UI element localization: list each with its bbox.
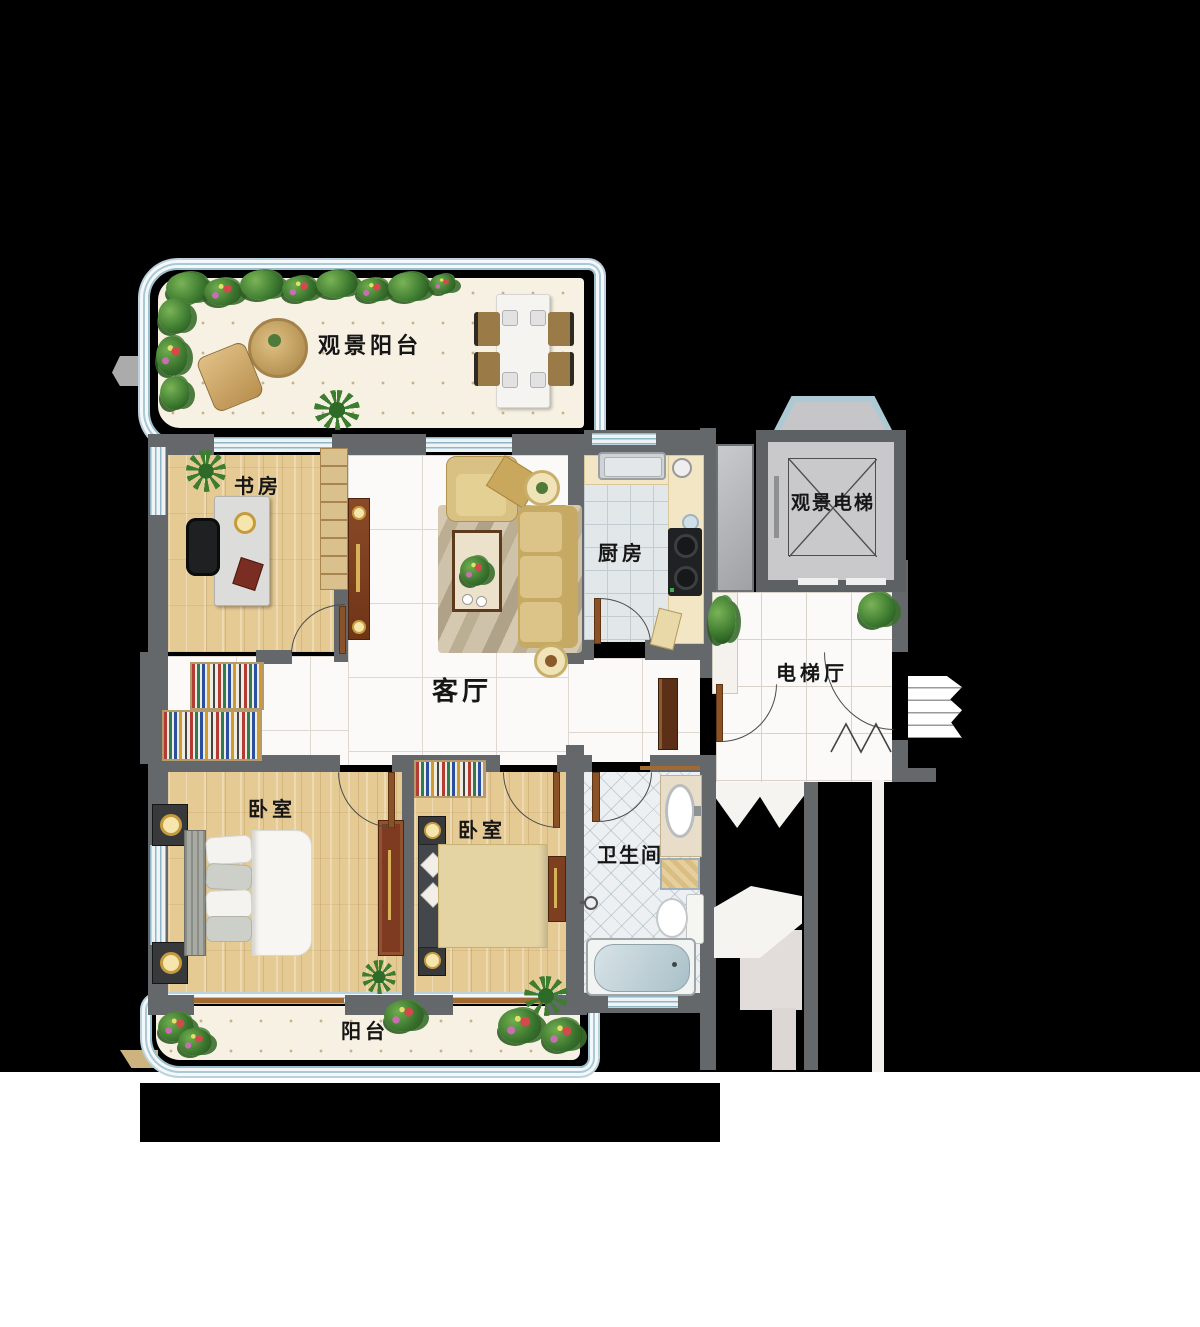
lamp-icon	[424, 952, 441, 969]
room-label-master-bedroom: 卧室	[192, 798, 352, 822]
bed-blanket	[252, 830, 312, 956]
teacup-icon	[476, 596, 487, 607]
flower-plant-icon	[178, 1028, 212, 1056]
room-label-bathroom: 卫生间	[550, 844, 710, 868]
sideboard-knob-icon	[352, 506, 366, 520]
study-bookcase	[320, 448, 348, 590]
study-window	[214, 437, 332, 452]
counter-burner-icon	[672, 458, 692, 478]
elevator-door-mark	[798, 578, 838, 585]
sill-plant-icon	[708, 596, 736, 644]
bathtub-basin	[594, 944, 690, 992]
dining-chair	[548, 352, 574, 386]
hall-bookshelf	[190, 662, 264, 710]
bed-pillow	[205, 834, 253, 865]
sideboard-handle	[356, 544, 360, 592]
entry-corridor-floor	[568, 658, 700, 762]
room-label-elevator-hall: 电梯厅	[732, 662, 892, 686]
lamp-icon	[160, 952, 182, 974]
kitchen-window	[592, 433, 656, 445]
wall	[804, 782, 818, 1070]
flower-plant-icon	[282, 276, 318, 302]
dining-chair	[474, 312, 500, 346]
place-setting	[502, 372, 518, 388]
teacup-icon	[462, 594, 473, 605]
wall	[140, 652, 162, 764]
shoe-cabinet	[658, 678, 678, 750]
elevator-door-mark	[846, 578, 886, 585]
plant-icon	[388, 272, 430, 302]
side-table-bottom-dot	[545, 655, 557, 667]
room-label-living-room: 客厅	[382, 676, 542, 707]
place-setting	[530, 310, 546, 326]
wall	[392, 755, 414, 772]
plant-icon	[316, 270, 358, 298]
flower-plant-icon	[430, 274, 456, 294]
flower-plant-icon	[156, 336, 188, 376]
side-table-top-dot	[536, 482, 548, 494]
shaft-white-band	[872, 780, 884, 1072]
room-label-second-bedroom: 卧室	[402, 819, 562, 843]
flower-plant-icon	[542, 1018, 582, 1052]
bathroom-window	[608, 996, 678, 1008]
sofa-cushion	[520, 602, 562, 642]
palm-plant-icon	[314, 390, 360, 430]
wall	[584, 755, 592, 772]
room-label-balcony: 阳台	[285, 1020, 445, 1044]
plant-icon	[158, 298, 192, 334]
plant-icon	[240, 270, 284, 300]
toilet-tank	[686, 894, 704, 944]
bed2-blanket	[438, 844, 548, 948]
wardrobe-handle	[388, 850, 391, 920]
bedroom-plant-icon	[362, 960, 396, 994]
room-label-kitchen: 厨房	[562, 542, 682, 566]
stove-light	[670, 588, 674, 592]
hall-plant-icon	[858, 592, 896, 628]
bedroom-bookshelf	[414, 760, 486, 798]
bed-headboard	[184, 830, 206, 956]
study-side-window	[150, 447, 166, 515]
dining-chair	[548, 312, 574, 346]
kitchen-sink-bowl	[604, 457, 662, 477]
hall-bookshelf	[162, 710, 262, 761]
bathroom-sink	[665, 784, 695, 838]
shower-mixer-icon	[584, 896, 598, 910]
stove-burner-icon	[674, 566, 698, 590]
table-flowers-icon	[460, 556, 490, 586]
double-door-fold-icon	[830, 722, 892, 754]
living-room-window	[426, 437, 512, 452]
flower-plant-icon	[204, 278, 242, 306]
sofa-cushion	[520, 512, 562, 552]
fridge-panel	[716, 444, 754, 592]
wall	[557, 755, 584, 772]
bedroom-side-window	[150, 845, 166, 945]
bathtub-drain-icon	[672, 962, 677, 967]
desk-lamp-icon	[234, 512, 256, 534]
entry-stairs	[908, 676, 962, 738]
bed-pillow	[206, 889, 253, 919]
wall	[566, 745, 584, 1010]
sink-faucet-icon	[694, 806, 701, 816]
flower-plant-icon	[356, 278, 390, 302]
room-label-viewing-balcony: 观景阳台	[280, 333, 460, 359]
corridor-threshold	[640, 766, 700, 770]
place-setting	[502, 310, 518, 326]
office-chair	[186, 518, 220, 576]
room-label-elevator: 观景电梯	[753, 493, 913, 516]
flower-plant-icon	[498, 1008, 542, 1044]
dresser-handle	[554, 868, 557, 908]
bed-pillow	[205, 863, 252, 891]
sofa-cushion	[520, 556, 562, 598]
dining-chair	[474, 352, 500, 386]
stairwell-strip	[772, 1008, 796, 1070]
toilet-bowl	[656, 898, 688, 938]
lamp-icon	[160, 814, 182, 836]
shower-mixer-stub	[580, 901, 586, 904]
bed-pillow	[206, 916, 252, 942]
caption-bar	[140, 1083, 720, 1142]
wardrobe	[378, 820, 404, 956]
sideboard-knob-icon	[352, 620, 366, 634]
plant-icon	[160, 376, 190, 410]
room-label-study: 书房	[198, 475, 318, 499]
place-setting	[530, 372, 546, 388]
floor-plan-canvas: 观景阳台 书房 客厅 厨房 观景电梯 电梯厅 卧室 卧室 卫生间 阳台	[0, 0, 1200, 1327]
balcony-door-threshold	[194, 998, 344, 1003]
wall	[892, 768, 936, 782]
